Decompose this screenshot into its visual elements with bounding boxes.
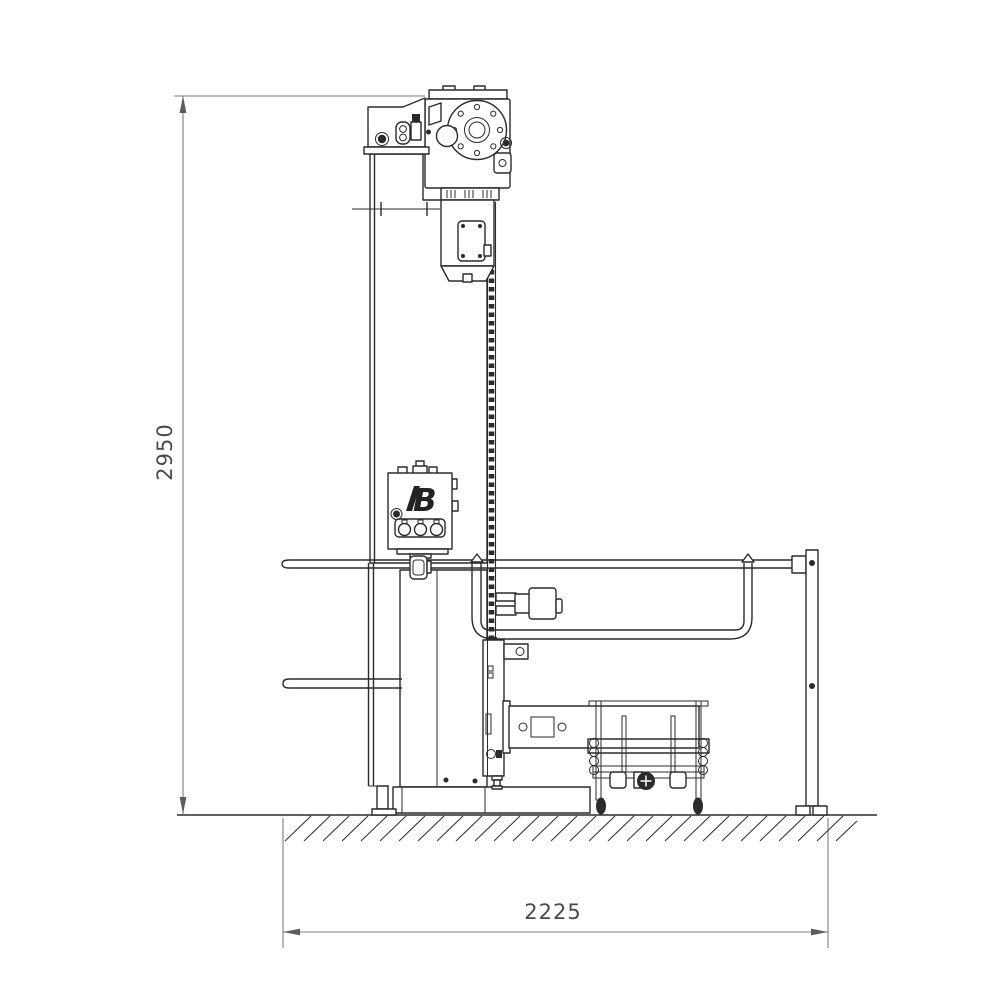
trolley-roller-bracket xyxy=(670,772,686,788)
post-foot-pad xyxy=(372,809,396,815)
push-button xyxy=(399,524,411,536)
box-bracket xyxy=(397,549,448,554)
button-panel xyxy=(395,519,445,537)
height-dimension-label: 2950 xyxy=(153,423,177,480)
width-dimension-label: 2225 xyxy=(524,900,581,924)
brand-logo-letter: B xyxy=(413,483,437,519)
clamp-block xyxy=(496,750,502,758)
lift-motor xyxy=(441,200,494,282)
sensor-bracket xyxy=(504,644,528,659)
gearbox-boss xyxy=(437,126,458,147)
rail-connector xyxy=(792,556,806,573)
housing-base-plate xyxy=(364,147,429,154)
motor-step xyxy=(484,245,491,256)
gearbox-tab xyxy=(494,153,511,173)
trolley-wheel xyxy=(596,798,606,815)
post-foot-pad xyxy=(796,806,810,815)
bolt-hole xyxy=(809,683,815,689)
bolt xyxy=(503,140,510,147)
trolley-wheel xyxy=(693,798,703,815)
bolt xyxy=(473,779,478,784)
bolt xyxy=(378,135,386,143)
brake-housing xyxy=(364,98,429,154)
control-box: B xyxy=(388,461,458,558)
post-foot-pad xyxy=(813,806,827,815)
trolley-roller-bracket xyxy=(610,772,626,788)
motor-notch xyxy=(463,274,472,282)
push-button xyxy=(415,524,427,536)
center-roller xyxy=(638,773,655,790)
bolt xyxy=(444,778,449,783)
machine-side-view-drawing: 2950 2225 xyxy=(0,0,1000,1000)
lower-column xyxy=(400,570,487,787)
post-foot-stem xyxy=(377,786,388,809)
push-button xyxy=(431,524,443,536)
carriage-channel xyxy=(483,640,504,789)
gearbox-cap-plate xyxy=(429,90,507,99)
motor-vent-band xyxy=(441,188,499,200)
indicator-light xyxy=(393,511,400,518)
bolt-hole xyxy=(809,560,815,566)
technical-drawing-page: 2950 2225 xyxy=(0,0,1000,1000)
